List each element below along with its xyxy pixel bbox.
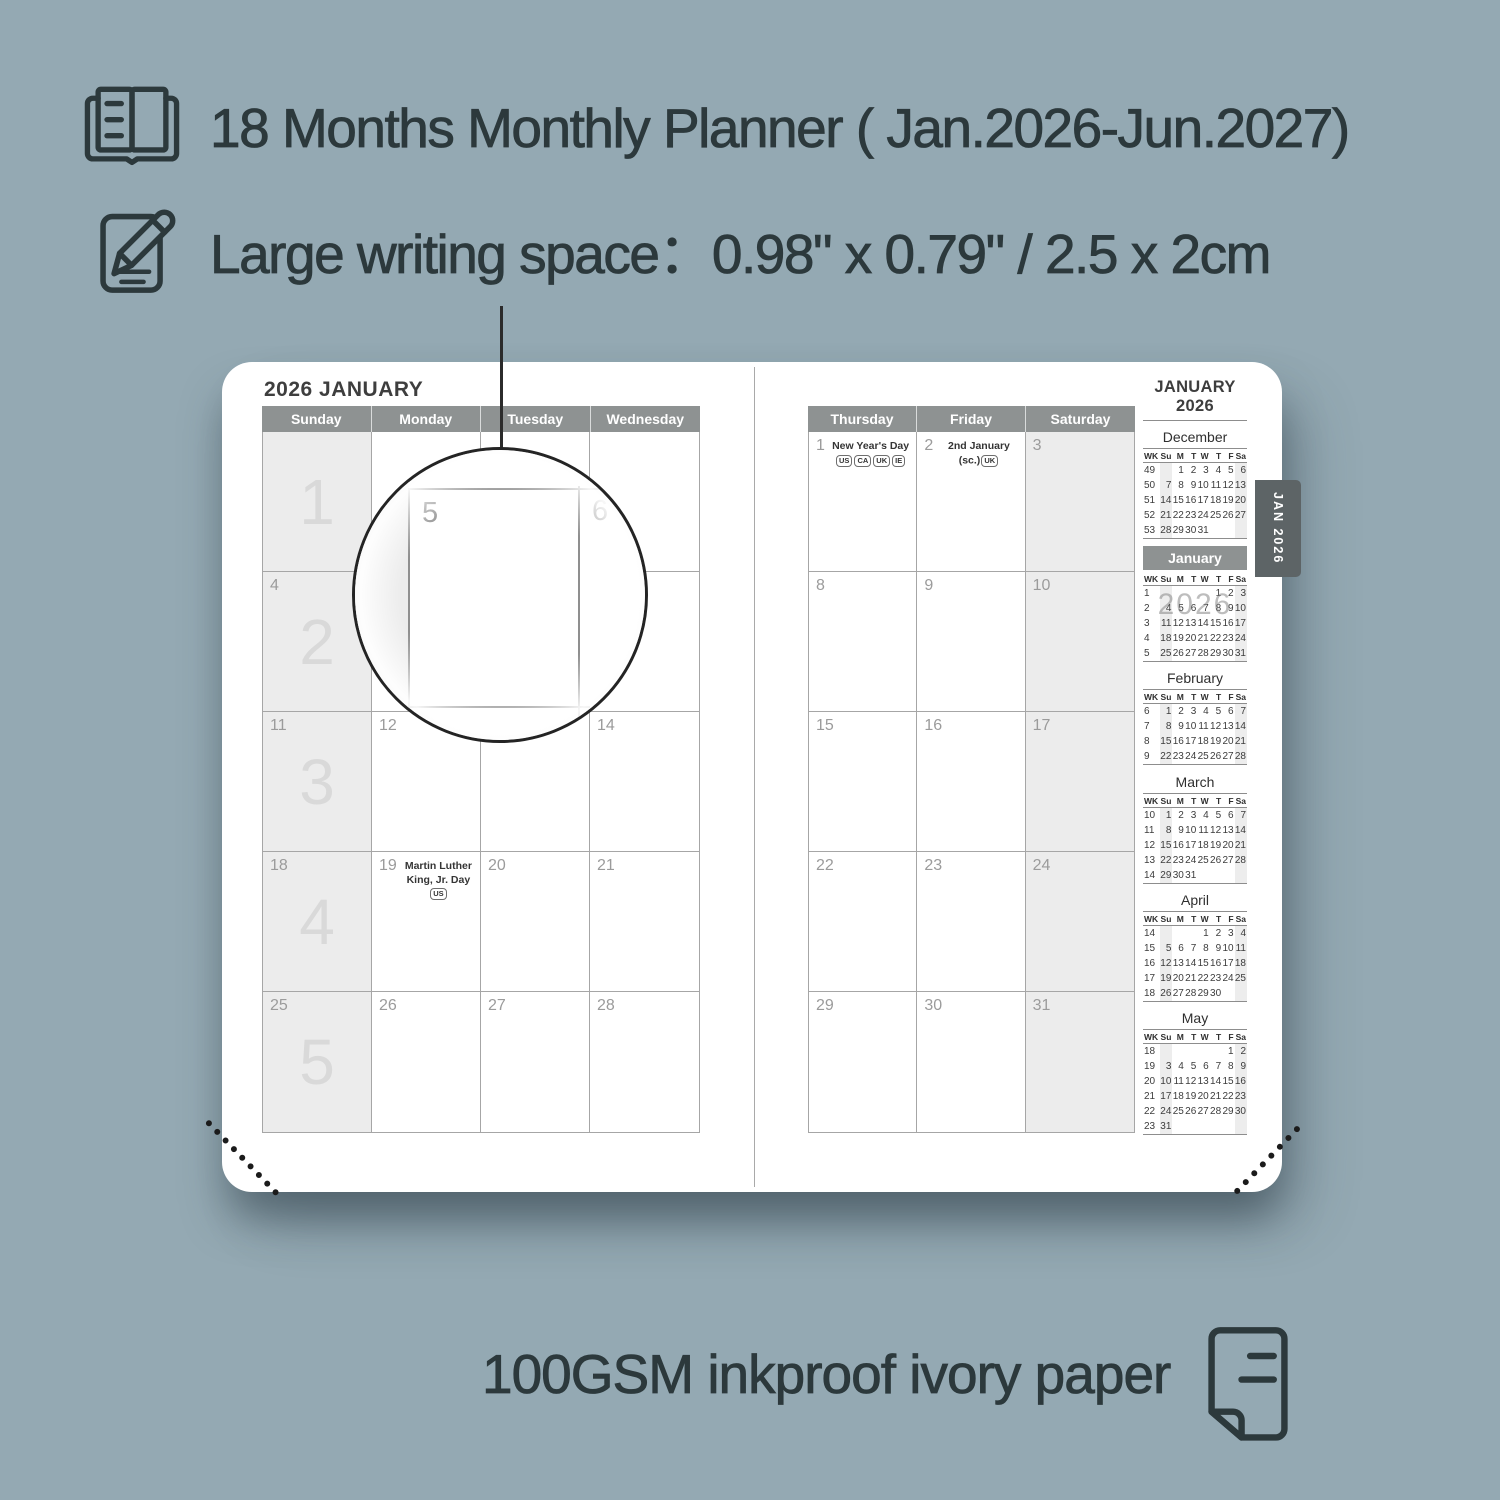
mini-month-name: April xyxy=(1143,891,1247,912)
feature-writing-space: Large writing space：0.98" x 0.79" / 2.5 … xyxy=(92,196,1270,301)
mini-date: 15 xyxy=(1197,956,1209,971)
mini-date: 16 xyxy=(1235,1074,1247,1089)
mini-date: 3 xyxy=(1185,808,1197,823)
country-badge: UK xyxy=(873,455,890,467)
mini-date: 14 xyxy=(1185,956,1197,971)
mini-date: 49 xyxy=(1143,463,1160,478)
mini-date xyxy=(1235,868,1247,883)
mini-date xyxy=(1235,986,1247,1001)
mini-col-label: Su xyxy=(1160,794,1172,807)
date-number: 11 xyxy=(270,717,287,735)
mini-date: 7 xyxy=(1235,808,1247,823)
mini-date: 6 xyxy=(1172,941,1184,956)
mini-dates-grid: 1123245678910311121314151617418192021222… xyxy=(1143,586,1247,662)
mini-date: 5 xyxy=(1210,808,1222,823)
day-header: Sunday xyxy=(262,406,372,432)
mini-date xyxy=(1172,1119,1184,1134)
mini-date: 30 xyxy=(1172,868,1184,883)
mini-date: 10 xyxy=(1197,478,1209,493)
mini-month-name: January xyxy=(1143,546,1247,570)
mini-col-label: T xyxy=(1185,690,1197,703)
day-cell: 23 xyxy=(917,852,1025,992)
mini-date: 1 xyxy=(1160,808,1172,823)
mini-date: 21 xyxy=(1185,971,1197,986)
mini-date: 31 xyxy=(1160,1119,1172,1134)
mini-date: 3 xyxy=(1235,586,1247,601)
mini-date: 5 xyxy=(1185,1059,1197,1074)
date-number: 2 xyxy=(924,437,933,455)
mini-date: 26 xyxy=(1222,508,1234,523)
mini-date: 24 xyxy=(1222,971,1234,986)
mini-date: 21 xyxy=(1235,838,1247,853)
mini-date: 21 xyxy=(1197,631,1209,646)
mini-date: 19 xyxy=(1210,838,1222,853)
date-number: 20 xyxy=(488,857,506,875)
mini-date xyxy=(1160,1044,1172,1059)
date-number: 4 xyxy=(270,577,279,595)
magnified-grid-line xyxy=(408,706,590,708)
mini-date: 30 xyxy=(1210,986,1222,1001)
mini-date: 8 xyxy=(1210,601,1222,616)
mini-date: 29 xyxy=(1222,1104,1234,1119)
right-page-title: JANUARY 2026 xyxy=(1143,378,1247,421)
mini-date: 18 xyxy=(1210,493,1222,508)
mini-month-april: AprilWKSuMTWTFSa141234155678910111612131… xyxy=(1143,891,1247,1002)
day-cell: 10 xyxy=(1026,572,1134,712)
mini-date: 1 xyxy=(1222,1044,1234,1059)
mini-date: 22 xyxy=(1197,971,1209,986)
feature-writing-space-label: Large writing space：0.98" x 0.79" / 2.5 … xyxy=(210,209,1270,289)
day-cell: 418 xyxy=(263,852,372,992)
mini-date: 17 xyxy=(1185,838,1197,853)
mini-date: 4 xyxy=(1210,463,1222,478)
mini-date: 11 xyxy=(1210,478,1222,493)
mini-date: 24 xyxy=(1197,508,1209,523)
mini-date: 25 xyxy=(1197,853,1209,868)
mini-date: 7 xyxy=(1210,1059,1222,1074)
mini-col-label: Su xyxy=(1160,1030,1172,1043)
mini-col-label: W xyxy=(1197,912,1209,925)
mini-col-label: M xyxy=(1172,1030,1184,1043)
mini-date: 24 xyxy=(1160,1104,1172,1119)
mini-date: 28 xyxy=(1210,1104,1222,1119)
mini-date: 8 xyxy=(1143,734,1160,749)
day-cell: 15 xyxy=(809,712,917,852)
mini-date: 23 xyxy=(1185,508,1197,523)
country-badge: IE xyxy=(892,455,905,467)
magnified-grid-line xyxy=(578,486,580,740)
mini-date: 1 xyxy=(1143,586,1160,601)
mini-date: 14 xyxy=(1235,823,1247,838)
magnified-date-5: 5 xyxy=(422,497,438,530)
mini-week-header: WKSuMTWTFSa xyxy=(1143,449,1247,463)
mini-date: 10 xyxy=(1143,808,1160,823)
mini-date: 10 xyxy=(1185,719,1197,734)
holiday-name: Martin Luther King, Jr. Day xyxy=(405,860,472,886)
date-number: 31 xyxy=(1033,997,1051,1015)
mini-week-header: WKSuMTWTFSa xyxy=(1143,794,1247,808)
magnified-sunday-shade xyxy=(355,450,409,740)
mini-date: 18 xyxy=(1197,838,1209,853)
date-number: 27 xyxy=(488,997,506,1015)
mini-col-label: F xyxy=(1222,572,1234,585)
mini-dates-grid: 6123456778910111213148151617181920219222… xyxy=(1143,704,1247,765)
mini-date: 9 xyxy=(1185,478,1197,493)
mini-date: 28 xyxy=(1197,646,1209,661)
date-number: 29 xyxy=(816,997,834,1015)
date-number: 22 xyxy=(816,857,834,875)
mini-col-label: T xyxy=(1185,572,1197,585)
mini-date: 22 xyxy=(1160,749,1172,764)
mini-date: 17 xyxy=(1143,971,1160,986)
mini-col-label: T xyxy=(1210,690,1222,703)
day-cell: 1New Year's DayUSCAUKIE xyxy=(809,432,917,572)
mini-date: 21 xyxy=(1160,508,1172,523)
mini-week-header: WKSuMTWTFSa xyxy=(1143,1030,1247,1044)
date-number: 9 xyxy=(924,577,933,595)
day-header: Friday xyxy=(917,406,1026,432)
mini-date: 31 xyxy=(1197,523,1209,538)
mini-date: 13 xyxy=(1235,478,1247,493)
mini-date: 3 xyxy=(1143,616,1160,631)
mini-col-label: F xyxy=(1222,1030,1234,1043)
mini-col-label: W xyxy=(1197,794,1209,807)
date-number: 14 xyxy=(597,717,615,735)
mini-date: 22 xyxy=(1160,853,1172,868)
mini-col-label: Su xyxy=(1160,912,1172,925)
mini-month-name: December xyxy=(1143,428,1247,449)
date-number: 3 xyxy=(1033,437,1042,455)
mini-col-label: F xyxy=(1222,449,1234,462)
mini-date: 14 xyxy=(1197,616,1209,631)
mini-week-header: WKSuMTWTFSa xyxy=(1143,690,1247,704)
left-page-title: 2026 JANUARY xyxy=(264,378,423,402)
mini-date: 18 xyxy=(1160,631,1172,646)
mini-date: 27 xyxy=(1172,986,1184,1001)
mini-month-february: FebruaryWKSuMTWTFSa612345677891011121314… xyxy=(1143,669,1247,765)
mini-date: 13 xyxy=(1197,1074,1209,1089)
day-cell: 20 xyxy=(481,852,590,992)
mini-date: 14 xyxy=(1143,926,1160,941)
day-cell: 3 xyxy=(1026,432,1134,572)
mini-dates-grid: 1012345671189101112131412151617181920211… xyxy=(1143,808,1247,884)
mini-date: 18 xyxy=(1172,1089,1184,1104)
mini-date: 29 xyxy=(1172,523,1184,538)
mini-date: 6 xyxy=(1222,808,1234,823)
mini-date: 26 xyxy=(1160,986,1172,1001)
mini-col-label: Sa xyxy=(1235,449,1247,462)
mini-date: 13 xyxy=(1172,956,1184,971)
mini-date: 15 xyxy=(1160,838,1172,853)
day-cell: 525 xyxy=(263,992,372,1132)
mini-date: 27 xyxy=(1222,853,1234,868)
mini-date: 3 xyxy=(1185,704,1197,719)
mini-date xyxy=(1160,463,1172,478)
mini-date: 23 xyxy=(1172,749,1184,764)
mini-date: 27 xyxy=(1222,749,1234,764)
date-number: 15 xyxy=(816,717,834,735)
mini-col-label: WK xyxy=(1143,794,1160,807)
mini-date: 19 xyxy=(1172,631,1184,646)
day-cell: 28 xyxy=(590,992,699,1132)
date-number: 28 xyxy=(597,997,615,1015)
mini-col-label: F xyxy=(1222,690,1234,703)
feature-months: 18 Months Monthly Planner ( Jan.2026-Jun… xyxy=(80,84,1349,171)
mini-col-label: T xyxy=(1210,794,1222,807)
mini-col-label: Sa xyxy=(1235,690,1247,703)
mini-date: 17 xyxy=(1222,956,1234,971)
paper-icon xyxy=(1204,1326,1292,1451)
mini-month-name: May xyxy=(1143,1009,1247,1030)
mini-col-label: W xyxy=(1197,690,1209,703)
mini-date: 26 xyxy=(1210,749,1222,764)
mini-date: 7 xyxy=(1197,601,1209,616)
mini-date: 9 xyxy=(1143,749,1160,764)
mini-date: 28 xyxy=(1160,523,1172,538)
mini-date: 16 xyxy=(1222,616,1234,631)
mini-date xyxy=(1222,868,1234,883)
mini-date xyxy=(1160,926,1172,941)
page-spine-divider xyxy=(754,367,755,1187)
mini-date: 11 xyxy=(1143,823,1160,838)
mini-date: 11 xyxy=(1197,719,1209,734)
mini-date: 3 xyxy=(1222,926,1234,941)
mini-date: 53 xyxy=(1143,523,1160,538)
magnified-grid-line xyxy=(408,488,645,490)
mini-date xyxy=(1197,1119,1209,1134)
mini-date xyxy=(1185,1119,1197,1134)
date-number: 18 xyxy=(270,857,288,875)
day-cell: 24 xyxy=(1026,852,1134,992)
mini-date: 22 xyxy=(1172,508,1184,523)
holiday-label: 2nd January (sc.)UK xyxy=(936,437,1021,468)
mini-date: 11 xyxy=(1235,941,1247,956)
mini-date: 28 xyxy=(1235,749,1247,764)
mini-date: 27 xyxy=(1197,1104,1209,1119)
mini-date xyxy=(1172,926,1184,941)
mini-date: 16 xyxy=(1185,493,1197,508)
mini-col-label: WK xyxy=(1143,1030,1160,1043)
date-number: 26 xyxy=(379,997,397,1015)
day-header: Thursday xyxy=(808,406,917,432)
mini-date: 20 xyxy=(1222,734,1234,749)
mini-date: 2 xyxy=(1172,704,1184,719)
mini-col-label: WK xyxy=(1143,690,1160,703)
mini-date: 24 xyxy=(1185,853,1197,868)
right-day-header-row: ThursdayFridaySaturday xyxy=(808,406,1135,432)
country-badge: CA xyxy=(854,455,871,467)
day-header: Saturday xyxy=(1026,406,1135,432)
mini-date: 4 xyxy=(1172,1059,1184,1074)
date-number: 17 xyxy=(1033,717,1051,735)
magnified-grid-line xyxy=(408,488,410,708)
mini-date: 29 xyxy=(1160,868,1172,883)
mini-col-label: W xyxy=(1197,572,1209,585)
mini-col-label: Sa xyxy=(1235,912,1247,925)
mini-date: 30 xyxy=(1235,1104,1247,1119)
mini-date: 25 xyxy=(1235,971,1247,986)
mini-date: 6 xyxy=(1197,1059,1209,1074)
mini-date: 13 xyxy=(1222,719,1234,734)
mini-date: 1 xyxy=(1197,926,1209,941)
mini-date xyxy=(1210,1119,1222,1134)
mini-month-december: DecemberWKSuMTWTFSa491234565078910111213… xyxy=(1143,428,1247,539)
mini-date: 6 xyxy=(1143,704,1160,719)
mini-date: 23 xyxy=(1235,1089,1247,1104)
mini-col-label: W xyxy=(1197,1030,1209,1043)
mini-date: 3 xyxy=(1160,1059,1172,1074)
date-number: 23 xyxy=(924,857,942,875)
mini-date: 15 xyxy=(1222,1074,1234,1089)
mini-date xyxy=(1235,1119,1247,1134)
mini-col-label: WK xyxy=(1143,572,1160,585)
date-number: 30 xyxy=(924,997,942,1015)
callout-pointer-line xyxy=(500,306,503,452)
mini-col-label: Sa xyxy=(1235,572,1247,585)
mini-date: 9 xyxy=(1210,941,1222,956)
mini-date: 25 xyxy=(1197,749,1209,764)
day-cell: 22nd January (sc.)UK xyxy=(917,432,1025,572)
mini-date: 18 xyxy=(1143,1044,1160,1059)
mini-date: 21 xyxy=(1210,1089,1222,1104)
mini-week-header: WKSuMTWTFSa xyxy=(1143,912,1247,926)
mini-date: 28 xyxy=(1235,853,1247,868)
mini-col-label: W xyxy=(1197,449,1209,462)
day-cell: 29 xyxy=(809,992,917,1132)
mini-col-label: T xyxy=(1185,912,1197,925)
mini-date: 11 xyxy=(1160,616,1172,631)
mini-date: 2 xyxy=(1172,808,1184,823)
mini-date: 23 xyxy=(1172,853,1184,868)
mini-date: 4 xyxy=(1197,704,1209,719)
footer-caption-row: 100GSM inkproof ivory paper xyxy=(482,1326,1292,1451)
mini-col-label: F xyxy=(1222,794,1234,807)
holiday-name: 2nd January (sc.) xyxy=(948,440,1010,466)
day-cell: 14 xyxy=(590,712,699,852)
mini-date: 14 xyxy=(1235,719,1247,734)
mini-date: 29 xyxy=(1197,986,1209,1001)
mini-col-label: WK xyxy=(1143,912,1160,925)
mini-col-label: T xyxy=(1185,449,1197,462)
mini-col-label: T xyxy=(1210,912,1222,925)
mini-date: 10 xyxy=(1222,941,1234,956)
day-cell: 8 xyxy=(809,572,917,712)
mini-date: 20 xyxy=(1222,838,1234,853)
mini-date: 26 xyxy=(1210,853,1222,868)
mini-date: 2 xyxy=(1235,1044,1247,1059)
mini-date xyxy=(1210,868,1222,883)
feature-months-label: 18 Months Monthly Planner ( Jan.2026-Jun… xyxy=(210,96,1349,160)
mini-date: 9 xyxy=(1172,823,1184,838)
footer-caption: 100GSM inkproof ivory paper xyxy=(482,1342,1170,1406)
mini-date xyxy=(1197,586,1209,601)
mini-col-label: T xyxy=(1210,449,1222,462)
day-cell: 31 xyxy=(1026,992,1134,1132)
mini-month-name: February xyxy=(1143,669,1247,690)
day-cell: 9 xyxy=(917,572,1025,712)
mini-date: 16 xyxy=(1143,956,1160,971)
day-header: Tuesday xyxy=(481,406,591,432)
day-cell: 19Martin Luther King, Jr. DayUS xyxy=(372,852,481,992)
country-badge: UK xyxy=(981,455,998,467)
mini-date: 22 xyxy=(1210,631,1222,646)
mini-date: 1 xyxy=(1172,463,1184,478)
mini-date: 5 xyxy=(1210,704,1222,719)
date-number: 21 xyxy=(597,857,615,875)
date-number: 19 xyxy=(379,857,397,875)
date-number: 16 xyxy=(924,717,942,735)
mini-date: 26 xyxy=(1172,646,1184,661)
mini-month-name: March xyxy=(1143,773,1247,794)
mini-date: 7 xyxy=(1235,704,1247,719)
mini-date: 20 xyxy=(1143,1074,1160,1089)
mini-col-label: T xyxy=(1210,1030,1222,1043)
mini-date: 8 xyxy=(1222,1059,1234,1074)
pencil-icon xyxy=(92,196,184,301)
mini-date: 27 xyxy=(1185,646,1197,661)
mini-col-label: M xyxy=(1172,912,1184,925)
mini-month-may: MayWKSuMTWTFSa18121934567892010111213141… xyxy=(1143,1009,1247,1135)
mini-date: 2 xyxy=(1143,601,1160,616)
mini-week-header: WKSuMTWTFSa xyxy=(1143,572,1247,586)
mini-date: 23 xyxy=(1210,971,1222,986)
mini-date: 17 xyxy=(1185,734,1197,749)
mini-date: 16 xyxy=(1172,734,1184,749)
date-number: 1 xyxy=(816,437,825,455)
mini-date: 19 xyxy=(1210,734,1222,749)
mini-date: 21 xyxy=(1143,1089,1160,1104)
month-tab: JAN 2026 xyxy=(1255,480,1301,577)
mini-date: 18 xyxy=(1143,986,1160,1001)
mini-date xyxy=(1222,986,1234,1001)
left-day-header-row: SundayMondayTuesdayWednesday xyxy=(262,406,700,432)
mini-col-label: M xyxy=(1172,449,1184,462)
mini-date: 5 xyxy=(1160,941,1172,956)
mini-date: 7 xyxy=(1160,478,1172,493)
mini-date: 51 xyxy=(1143,493,1160,508)
mini-date: 4 xyxy=(1197,808,1209,823)
mini-date: 8 xyxy=(1197,941,1209,956)
mini-date xyxy=(1222,523,1234,538)
mini-date: 2 xyxy=(1210,926,1222,941)
mini-col-label: M xyxy=(1172,690,1184,703)
mini-date: 10 xyxy=(1185,823,1197,838)
mini-date: 29 xyxy=(1210,646,1222,661)
mini-col-label: F xyxy=(1222,912,1234,925)
mini-date xyxy=(1210,1044,1222,1059)
mini-date: 13 xyxy=(1222,823,1234,838)
mini-date xyxy=(1185,1044,1197,1059)
mini-date: 19 xyxy=(1222,493,1234,508)
mini-date: 18 xyxy=(1235,956,1247,971)
mini-calendar-sidebar: JANUARY 2026 DecemberWKSuMTWTFSa49123456… xyxy=(1143,378,1247,1135)
mini-date: 27 xyxy=(1235,508,1247,523)
mini-date: 9 xyxy=(1235,1059,1247,1074)
mini-date: 12 xyxy=(1185,1074,1197,1089)
mini-date: 28 xyxy=(1185,986,1197,1001)
mini-date: 14 xyxy=(1160,493,1172,508)
country-badge: US xyxy=(430,888,446,900)
mini-date: 12 xyxy=(1172,616,1184,631)
mini-col-label: WK xyxy=(1143,449,1160,462)
mini-col-label: Sa xyxy=(1235,794,1247,807)
mini-date: 12 xyxy=(1210,719,1222,734)
mini-date xyxy=(1197,868,1209,883)
mini-col-label: Su xyxy=(1160,690,1172,703)
mini-date: 11 xyxy=(1197,823,1209,838)
mini-date xyxy=(1197,1044,1209,1059)
mini-date: 23 xyxy=(1222,631,1234,646)
